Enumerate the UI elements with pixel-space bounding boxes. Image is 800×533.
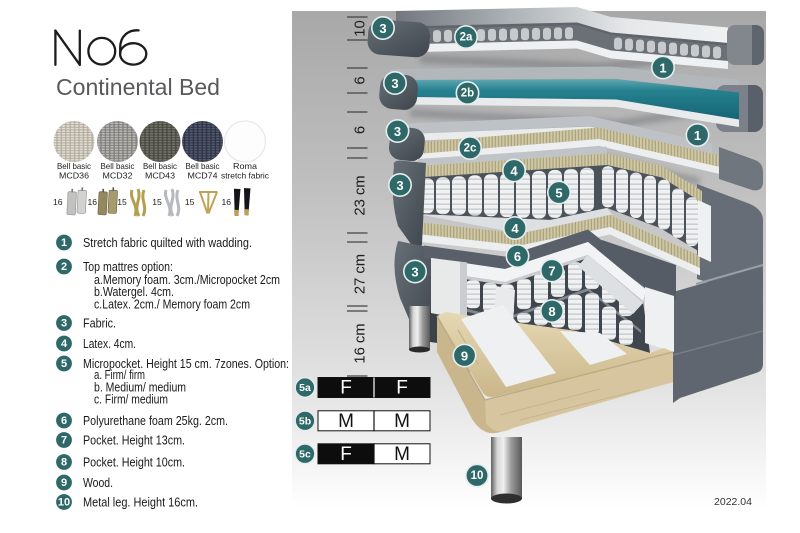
svg-text:5c: 5c <box>299 448 311 460</box>
svg-text:8: 8 <box>61 457 67 469</box>
svg-text:F: F <box>340 444 352 465</box>
svg-text:9: 9 <box>61 477 67 489</box>
svg-text:23 cm: 23 cm <box>353 175 369 215</box>
svg-text:7: 7 <box>548 264 555 279</box>
svg-text:Polyurethane foam 25kg. 2cm.: Polyurethane foam 25kg. 2cm. <box>83 413 228 428</box>
svg-text:16: 16 <box>53 197 63 207</box>
svg-text:Bell basic: Bell basic <box>101 162 135 171</box>
svg-text:8: 8 <box>548 304 555 319</box>
svg-text:5b: 5b <box>299 415 311 427</box>
svg-text:15: 15 <box>117 197 127 207</box>
svg-text:4: 4 <box>510 164 518 179</box>
svg-text:2b: 2b <box>461 88 474 100</box>
svg-text:7: 7 <box>61 435 67 447</box>
svg-text:16 cm: 16 cm <box>353 323 369 363</box>
svg-text:Pocket. Height 10cm.: Pocket. Height 10cm. <box>83 455 185 470</box>
svg-text:4: 4 <box>61 338 68 350</box>
svg-text:Roma: Roma <box>233 162 258 171</box>
svg-text:Bell basic: Bell basic <box>186 162 220 171</box>
svg-text:Fabric.: Fabric. <box>83 316 116 331</box>
svg-text:MCD32: MCD32 <box>103 172 134 181</box>
svg-text:M: M <box>394 411 410 432</box>
svg-text:stretch fabric: stretch fabric <box>221 172 269 181</box>
svg-text:10: 10 <box>353 20 369 36</box>
svg-text:3: 3 <box>411 265 418 280</box>
svg-text:Wood.: Wood. <box>83 475 113 490</box>
svg-text:6: 6 <box>353 126 369 134</box>
svg-text:M: M <box>338 411 354 432</box>
svg-text:27 cm: 27 cm <box>353 254 369 294</box>
svg-text:1: 1 <box>61 237 67 249</box>
svg-text:2c: 2c <box>464 143 477 155</box>
svg-text:6: 6 <box>61 415 67 427</box>
svg-text:1: 1 <box>659 61 666 76</box>
svg-text:MCD74: MCD74 <box>188 172 219 181</box>
svg-text:c.Latex. 2cm./ Memory foam 2cm: c.Latex. 2cm./ Memory foam 2cm <box>94 296 250 311</box>
svg-text:10: 10 <box>471 470 484 482</box>
svg-text:F: F <box>340 378 352 399</box>
svg-text:Stretch fabric quilted with wa: Stretch fabric quilted with wadding. <box>83 235 252 250</box>
svg-text:Bell basic: Bell basic <box>57 162 91 171</box>
svg-text:3: 3 <box>394 124 401 139</box>
svg-text:Latex. 4cm.: Latex. 4cm. <box>83 336 136 351</box>
svg-text:15: 15 <box>185 197 195 207</box>
svg-text:15: 15 <box>152 197 162 207</box>
svg-text:5: 5 <box>555 186 562 201</box>
svg-text:5a: 5a <box>299 382 311 394</box>
svg-text:1: 1 <box>694 128 701 143</box>
svg-text:3: 3 <box>391 76 398 91</box>
svg-text:2: 2 <box>61 261 67 273</box>
svg-text:M: M <box>394 444 410 465</box>
svg-text:MCD43: MCD43 <box>145 172 176 181</box>
svg-text:5: 5 <box>61 358 67 370</box>
svg-text:9: 9 <box>461 349 468 364</box>
svg-text:4: 4 <box>511 221 519 236</box>
svg-text:Bell basic: Bell basic <box>143 162 177 171</box>
svg-text:3: 3 <box>379 21 386 36</box>
svg-text:MCD36: MCD36 <box>59 172 90 181</box>
svg-text:2a: 2a <box>460 32 473 44</box>
svg-text:6: 6 <box>514 249 521 264</box>
svg-text:10: 10 <box>58 497 70 509</box>
svg-text:3: 3 <box>61 318 67 330</box>
svg-text:16: 16 <box>88 197 98 207</box>
svg-text:Pocket. Height 13cm.: Pocket. Height 13cm. <box>83 433 185 448</box>
svg-text:F: F <box>396 378 408 399</box>
svg-text:2022.04: 2022.04 <box>714 496 752 508</box>
svg-text:c. Firm/ medium: c. Firm/ medium <box>94 392 168 407</box>
svg-text:Metal leg. Height 16cm.: Metal leg. Height 16cm. <box>83 495 198 510</box>
svg-text:Continental Bed: Continental Bed <box>56 74 220 100</box>
svg-text:3: 3 <box>396 178 403 193</box>
svg-text:16: 16 <box>222 197 232 207</box>
svg-text:6: 6 <box>353 76 369 84</box>
